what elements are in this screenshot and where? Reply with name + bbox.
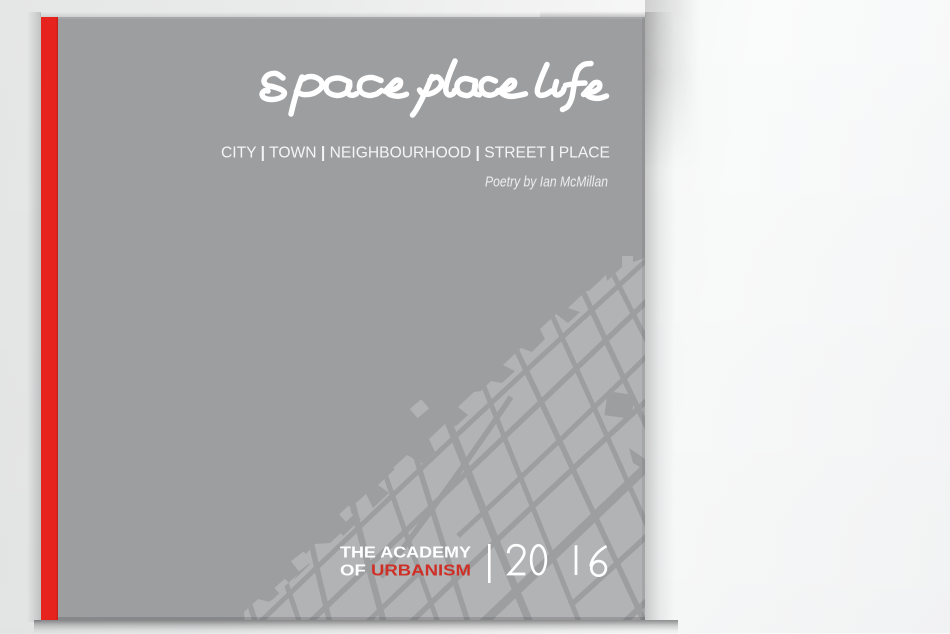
svg-text:THE ACADEMY: THE ACADEMY <box>340 545 472 562</box>
svg-text:Poetry by Ian McMillan: Poetry by Ian McMillan <box>485 174 608 191</box>
svg-text:CITY | TOWN | NEIGHBOURHOOD |: CITY | TOWN | NEIGHBOURHOOD | STREET | P… <box>221 145 610 162</box>
svg-text:OF URBANISM: OF URBANISM <box>340 563 471 580</box>
